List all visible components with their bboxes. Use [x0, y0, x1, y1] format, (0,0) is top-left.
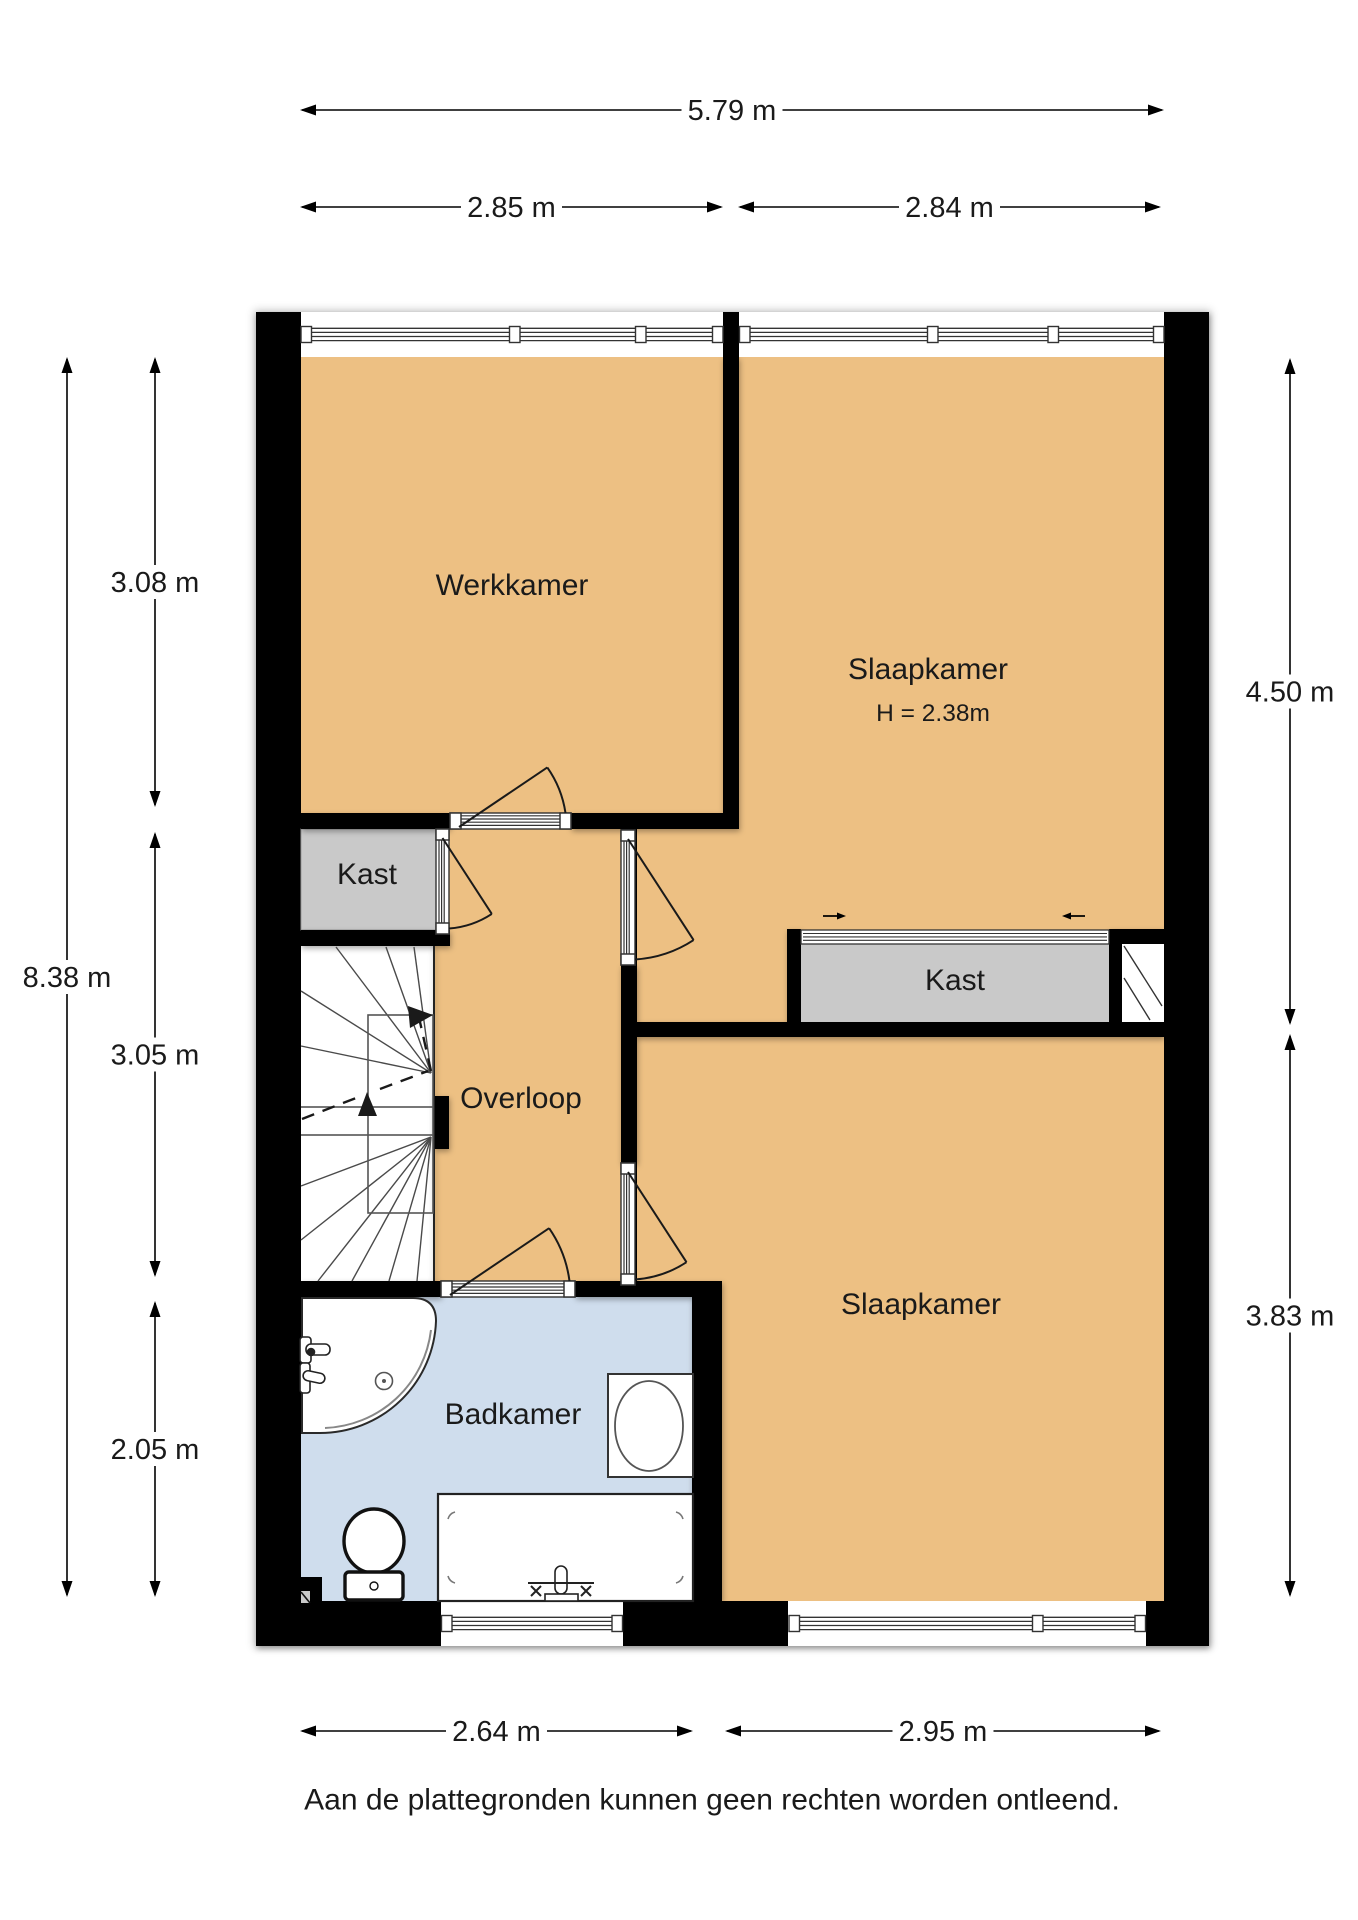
- svg-text:2.95 m: 2.95 m: [899, 1716, 988, 1748]
- svg-text:2.84 m: 2.84 m: [905, 192, 994, 224]
- svg-text:Kast: Kast: [337, 858, 398, 891]
- svg-text:4.50 m: 4.50 m: [1246, 677, 1335, 709]
- svg-text:2.64 m: 2.64 m: [452, 1716, 541, 1748]
- svg-text:H = 2.38m: H = 2.38m: [876, 700, 990, 727]
- svg-text:5.79 m: 5.79 m: [688, 95, 777, 127]
- svg-text:3.83 m: 3.83 m: [1246, 1301, 1335, 1333]
- svg-text:Kast: Kast: [925, 964, 986, 997]
- svg-text:2.85 m: 2.85 m: [467, 192, 556, 224]
- svg-text:Badkamer: Badkamer: [445, 1398, 582, 1431]
- svg-text:Slaapkamer: Slaapkamer: [841, 1288, 1001, 1321]
- svg-text:Overloop: Overloop: [460, 1082, 582, 1115]
- svg-text:Aan de plattegronden kunnen ge: Aan de plattegronden kunnen geen rechten…: [304, 1784, 1120, 1817]
- svg-text:Slaapkamer: Slaapkamer: [848, 653, 1008, 686]
- svg-text:3.08 m: 3.08 m: [111, 567, 200, 599]
- svg-text:8.38 m: 8.38 m: [23, 962, 112, 994]
- svg-text:2.05 m: 2.05 m: [111, 1434, 200, 1466]
- svg-text:3.05 m: 3.05 m: [111, 1040, 200, 1072]
- svg-text:Werkkamer: Werkkamer: [436, 569, 589, 602]
